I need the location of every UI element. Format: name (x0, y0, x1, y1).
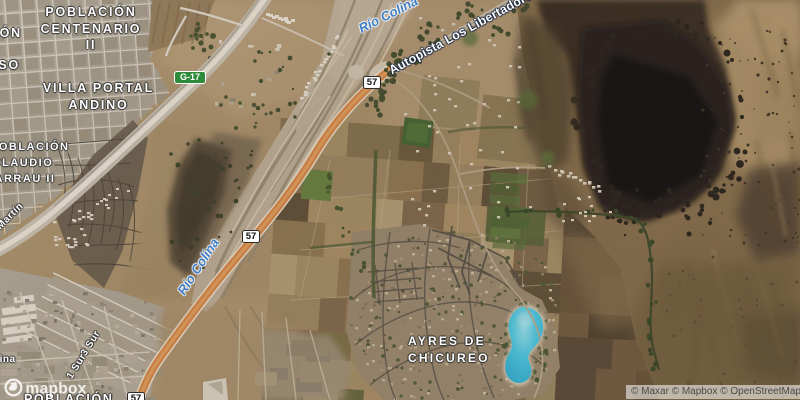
svg-text:mapbox: mapbox (26, 381, 87, 398)
